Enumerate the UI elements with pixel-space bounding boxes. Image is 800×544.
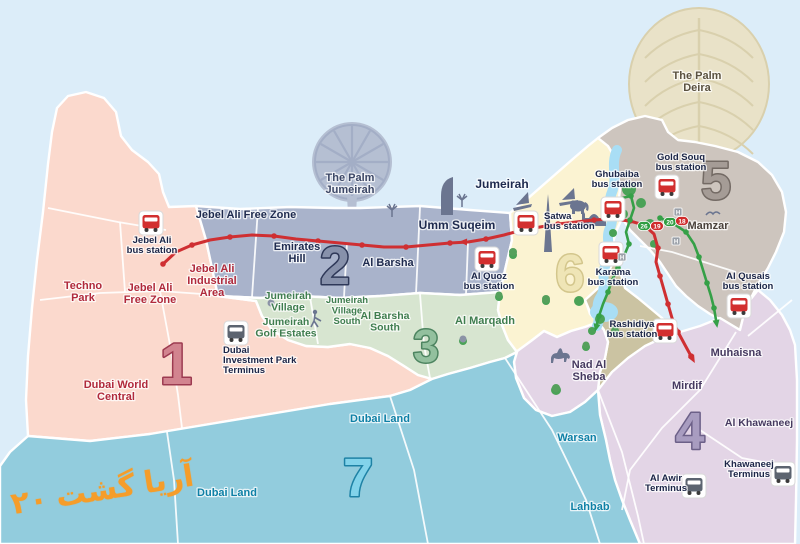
area-label: Mamzar [688,220,730,232]
route-stop-dot [160,261,166,267]
al-quoz-bus-station[interactable] [475,247,499,271]
al-quoz-bus-station-label: Al Quozbus station [464,271,515,292]
route-stop-dot [403,244,409,250]
svg-text:26: 26 [640,224,648,231]
area-label: Muhaisna [711,347,763,359]
al-qusais-bus-station[interactable] [727,294,751,318]
zone-number-5: 5 [701,151,731,211]
area-label: Al Marqadh [455,315,515,327]
route-stop-dot [704,280,710,286]
route-stop-dot [627,217,633,223]
svg-text:20: 20 [666,220,674,227]
jebel-ali-bus-station[interactable] [139,211,163,235]
route-badge-18: 18 [676,217,689,226]
route-stop-dot [483,236,489,242]
area-label: JumeirahGolf Estates [255,316,316,340]
route-stop-dot [626,241,632,247]
area-label: Lahbab [570,501,609,513]
dubai-zone-map: 1236547 [0,0,800,544]
gold-souq-bus-station[interactable] [655,175,679,199]
ghubaiba-bus-station-label: Ghubaibabus station [592,169,643,190]
route-stop-dot [657,273,663,279]
dubai-investment-park-terminus[interactable] [224,321,248,345]
zone-number-7: 7 [343,448,373,508]
route-stop-dot [696,254,702,260]
route-stop-dot [657,215,663,221]
area-label: Nad AlSheba [572,359,607,383]
watermark-number: ۲۰ [9,482,51,522]
route-stop-dot [189,242,195,248]
khawaneej-terminus-label: KhawaneejTerminus [724,459,774,480]
svg-text:H: H [674,240,678,246]
area-label: Warsan [557,432,597,444]
bus-stop-h-marker: H [618,253,626,262]
route-stop-dot [271,233,277,239]
jebel-ali-bus-station-label: Jebel Alibus station [127,235,178,256]
park-area [636,198,646,208]
route-badge-19: 19 [651,222,664,231]
map-canvas: 1236547 [0,0,800,544]
zone-number-1: 1 [160,332,192,397]
zone-number-3: 3 [413,320,439,372]
bus-stop-h-marker: H [672,237,680,246]
route-stop-dot [628,193,634,199]
area-label: Al Barsha [362,257,414,269]
svg-text:18: 18 [678,219,686,226]
svg-text:19: 19 [653,224,661,231]
satwa-bus-station[interactable] [514,211,538,235]
ghubaiba-bus-station[interactable] [601,197,625,221]
route-stop-dot [596,313,602,319]
route-stop-dot [711,305,717,311]
zone-number-6: 6 [556,245,585,303]
route-stop-dot [655,245,661,251]
area-label: Jebel AliFree Zone [124,282,177,306]
bus-stop-h-marker: H [674,208,682,217]
rashidiya-bus-station-label: Rashidiyabus station [607,319,658,340]
area-label: JumeirahVillage [265,290,312,314]
al-qusais-bus-station-label: Al Qusaisbus station [723,271,774,292]
area-label: Umm Suqeim [419,218,496,232]
route-stop-dot [447,240,453,246]
svg-text:H: H [620,256,624,262]
route-stop-dot [605,289,611,295]
route-badge-26: 26 [638,222,651,231]
route-stop-dot [227,234,233,240]
route-stop-dot [665,301,671,307]
route-stop-dot [359,242,365,248]
gold-souq-bus-station-label: Gold Souqbus station [656,152,707,173]
area-label: Al Khawaneej [725,417,793,429]
al-awir-terminus-label: Al AwirTerminus [645,473,687,494]
area-label: Dubai Land [197,487,257,499]
area-label: Jumeirah [475,177,528,191]
khawaneej-terminus[interactable] [771,462,795,486]
area-label: Jebel Ali Free Zone [196,209,296,221]
park-area [609,229,617,237]
route-badge-20: 20 [664,218,677,227]
area-label: The PalmJumeirah [326,172,375,196]
svg-text:H: H [676,211,680,217]
area-label: Dubai Land [350,413,410,425]
zone-number-4: 4 [676,403,705,461]
area-label: Mirdif [672,380,702,392]
